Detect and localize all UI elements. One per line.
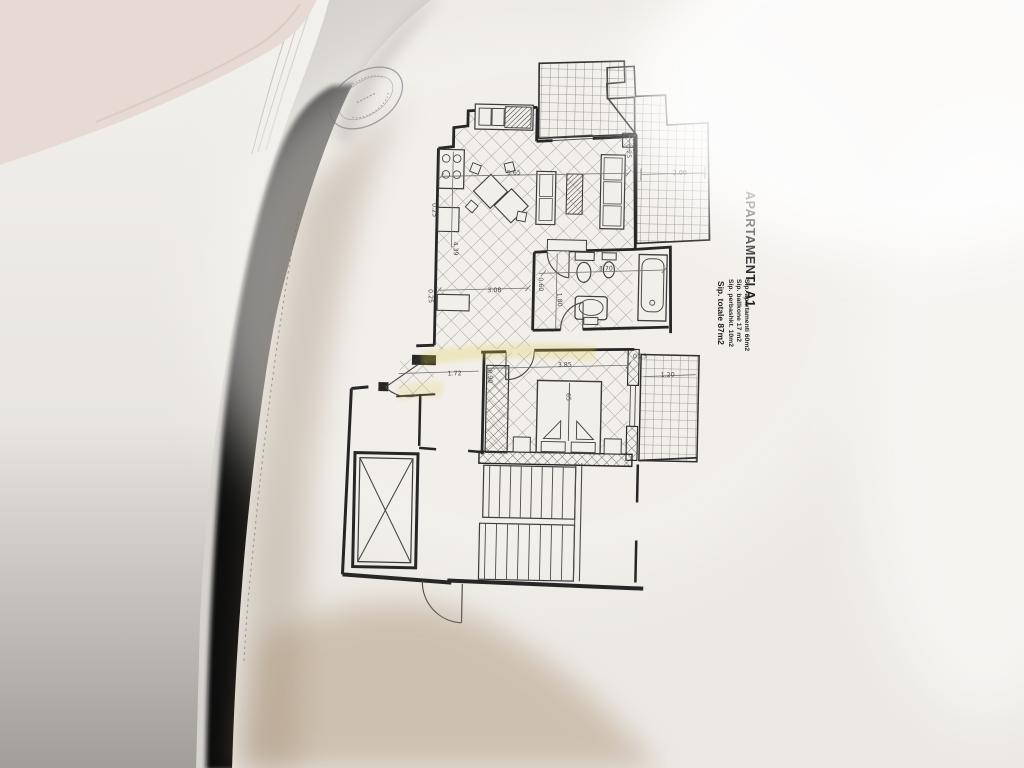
dimension-label: 3.70 <box>599 265 613 272</box>
photo-of-floor-plan: 5.654.390.253.080.250.603.701.800.252.00… <box>0 0 1024 768</box>
dimension-label: 0.25 <box>426 289 433 303</box>
tv-unit <box>566 174 583 214</box>
washbasin-pedestal <box>584 317 598 324</box>
cabinet <box>438 207 459 231</box>
dimension-label: 0.25 <box>625 144 632 158</box>
stove <box>439 149 465 189</box>
cabinet <box>437 294 469 311</box>
spec-line: Sip. apartamenti 60m2 <box>743 279 750 351</box>
spec-line: Sip. ballkone 17 m2 <box>735 279 742 342</box>
dimension-label: 3.08 <box>487 287 501 294</box>
dimension-label: 0.25 <box>633 353 647 360</box>
bed-head-cushion <box>541 441 565 452</box>
sink-basin <box>492 108 504 125</box>
spec-total-line: Sip. totale 87m2 <box>716 281 726 345</box>
dimension-label: 65 <box>564 393 571 401</box>
console <box>547 240 586 252</box>
dimension-label: 5.65 <box>507 169 521 176</box>
nightstand <box>513 437 530 452</box>
dimension-label: 1.20 <box>661 372 675 379</box>
bedroom-balcony <box>639 355 699 462</box>
dimension-label: 3.85 <box>558 362 572 369</box>
sink-basin <box>479 108 491 125</box>
dimension-label: 0.60 <box>537 277 544 291</box>
dimension-label: 4.39 <box>451 241 458 255</box>
dimension-label: 1.72 <box>448 370 462 377</box>
bedroom-right-wall <box>626 426 638 460</box>
nightstand <box>604 439 621 454</box>
bidet-back <box>602 253 616 260</box>
toilet-tank <box>575 252 594 260</box>
chair <box>516 211 527 222</box>
dimension-label: 0.90 <box>486 369 493 383</box>
dimension-label: 0.25 <box>430 203 437 217</box>
dimension-label: 0.25 <box>631 138 638 152</box>
dimension-label: 1.80 <box>555 293 562 307</box>
counter-hatch <box>505 107 531 129</box>
bed-head-cushion <box>571 442 595 453</box>
spec-line: Sip. perbashkt. 10m2 <box>727 279 734 347</box>
